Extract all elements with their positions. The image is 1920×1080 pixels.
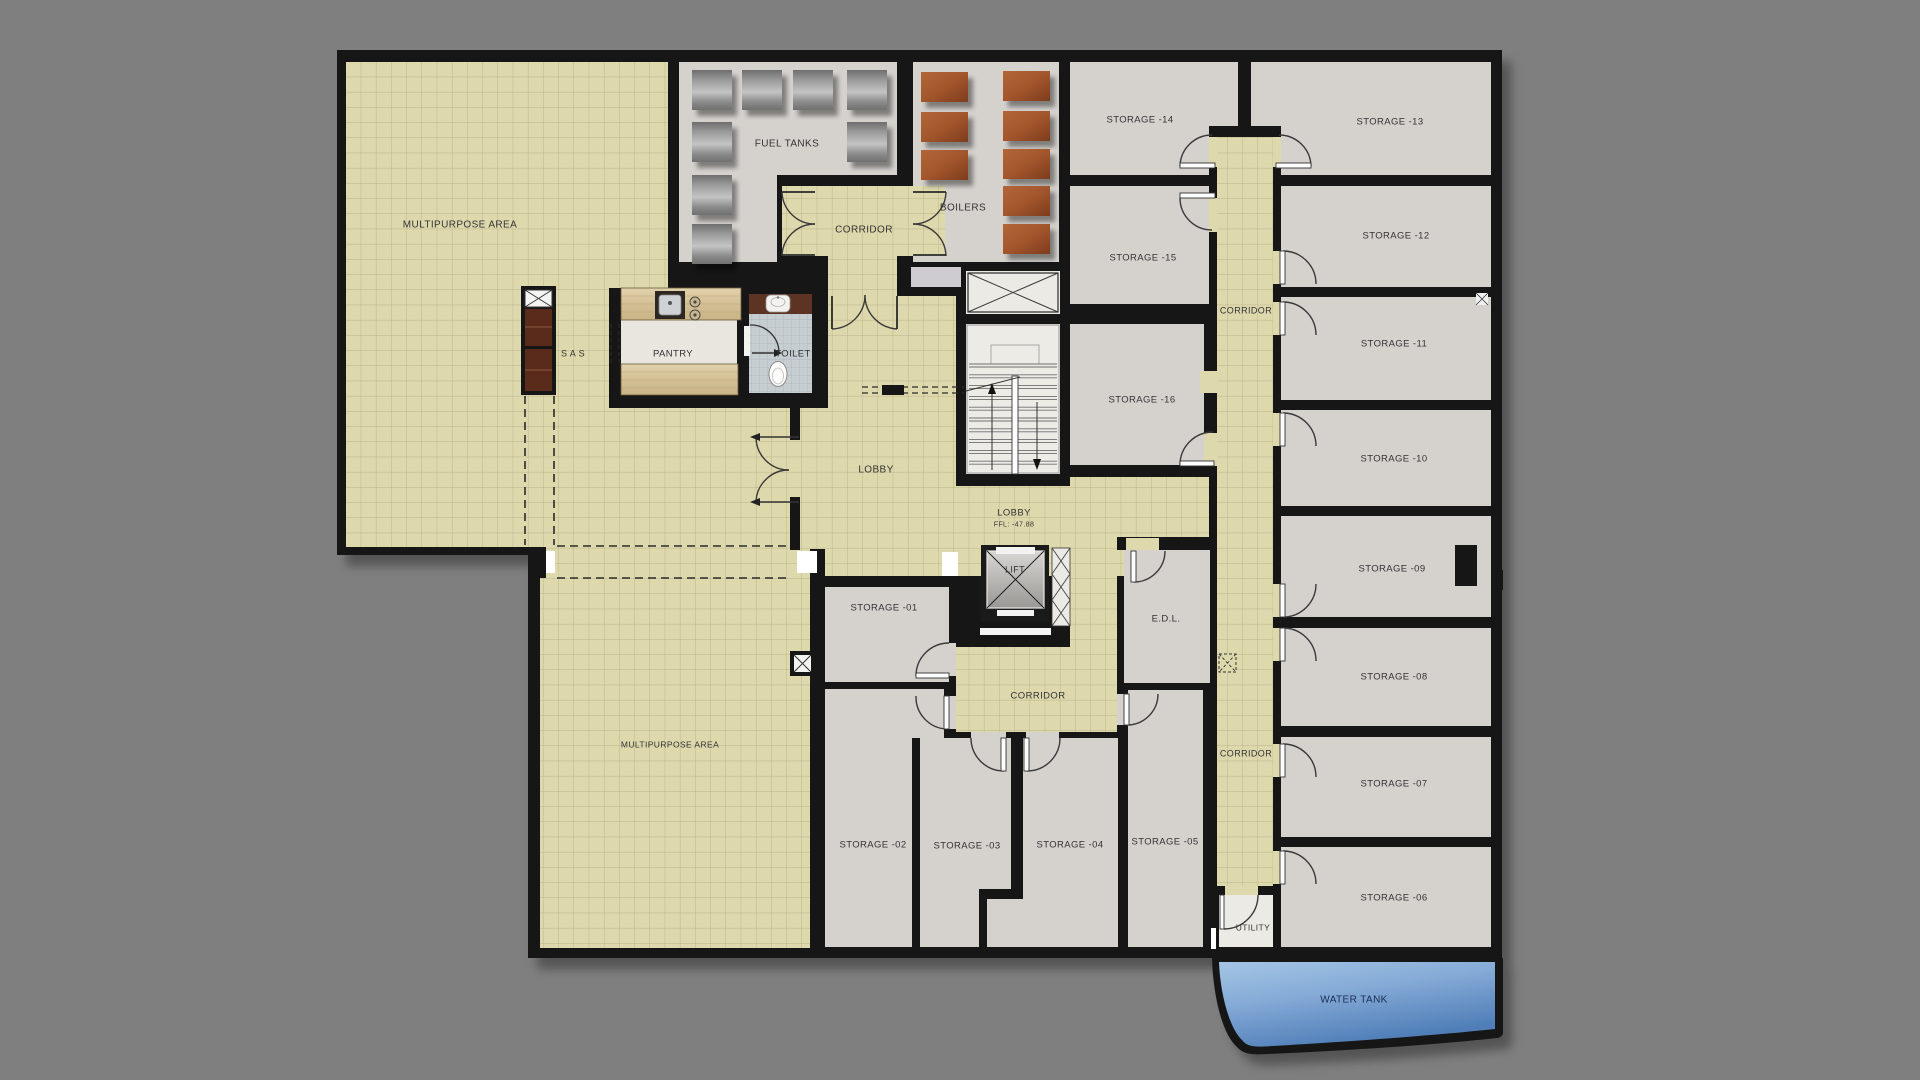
svg-text:PANTRY: PANTRY bbox=[653, 349, 693, 360]
svg-text:MULTIPURPOSE AREA: MULTIPURPOSE AREA bbox=[403, 220, 517, 231]
svg-text:STORAGE -11: STORAGE -11 bbox=[1361, 339, 1427, 350]
svg-text:FUEL TANKS: FUEL TANKS bbox=[755, 139, 819, 150]
svg-text:STORAGE -13: STORAGE -13 bbox=[1356, 117, 1423, 128]
svg-text:FFL: -47.88: FFL: -47.88 bbox=[994, 522, 1035, 529]
svg-text:STORAGE -16: STORAGE -16 bbox=[1108, 395, 1175, 406]
svg-text:STORAGE -12: STORAGE -12 bbox=[1362, 231, 1429, 242]
svg-text:LOBBY: LOBBY bbox=[858, 465, 893, 476]
svg-text:CORRIDOR: CORRIDOR bbox=[1220, 306, 1272, 316]
svg-text:STORAGE -08: STORAGE -08 bbox=[1360, 672, 1427, 683]
svg-text:STORAGE -09: STORAGE -09 bbox=[1358, 564, 1425, 575]
svg-text:STORAGE -01: STORAGE -01 bbox=[850, 603, 917, 614]
svg-text:STORAGE -07: STORAGE -07 bbox=[1360, 779, 1427, 790]
svg-text:STORAGE -03: STORAGE -03 bbox=[933, 841, 1000, 852]
svg-text:E.D.L.: E.D.L. bbox=[1152, 614, 1181, 625]
svg-text:MULTIPURPOSE AREA: MULTIPURPOSE AREA bbox=[621, 740, 719, 750]
svg-text:CORRIDOR: CORRIDOR bbox=[1220, 749, 1272, 759]
svg-text:STORAGE -14: STORAGE -14 bbox=[1106, 115, 1173, 126]
svg-text:CORRIDOR: CORRIDOR bbox=[1011, 691, 1066, 702]
svg-text:UTILITY: UTILITY bbox=[1236, 923, 1270, 933]
svg-text:WATER TANK: WATER TANK bbox=[1320, 995, 1388, 1006]
svg-text:STORAGE -10: STORAGE -10 bbox=[1360, 454, 1427, 465]
svg-text:STORAGE -06: STORAGE -06 bbox=[1360, 893, 1427, 904]
svg-text:TOILET: TOILET bbox=[775, 349, 810, 360]
svg-text:CORRIDOR: CORRIDOR bbox=[835, 225, 893, 236]
svg-text:LIFT: LIFT bbox=[1005, 565, 1025, 575]
svg-text:STORAGE -15: STORAGE -15 bbox=[1109, 253, 1176, 264]
svg-text:STORAGE -04: STORAGE -04 bbox=[1036, 840, 1103, 851]
svg-text:S A S: S A S bbox=[561, 349, 585, 359]
svg-text:LOBBY: LOBBY bbox=[997, 508, 1031, 519]
svg-text:BOILERS: BOILERS bbox=[940, 203, 986, 214]
svg-text:STORAGE -02: STORAGE -02 bbox=[839, 840, 906, 851]
svg-text:STORAGE -05: STORAGE -05 bbox=[1131, 837, 1198, 848]
